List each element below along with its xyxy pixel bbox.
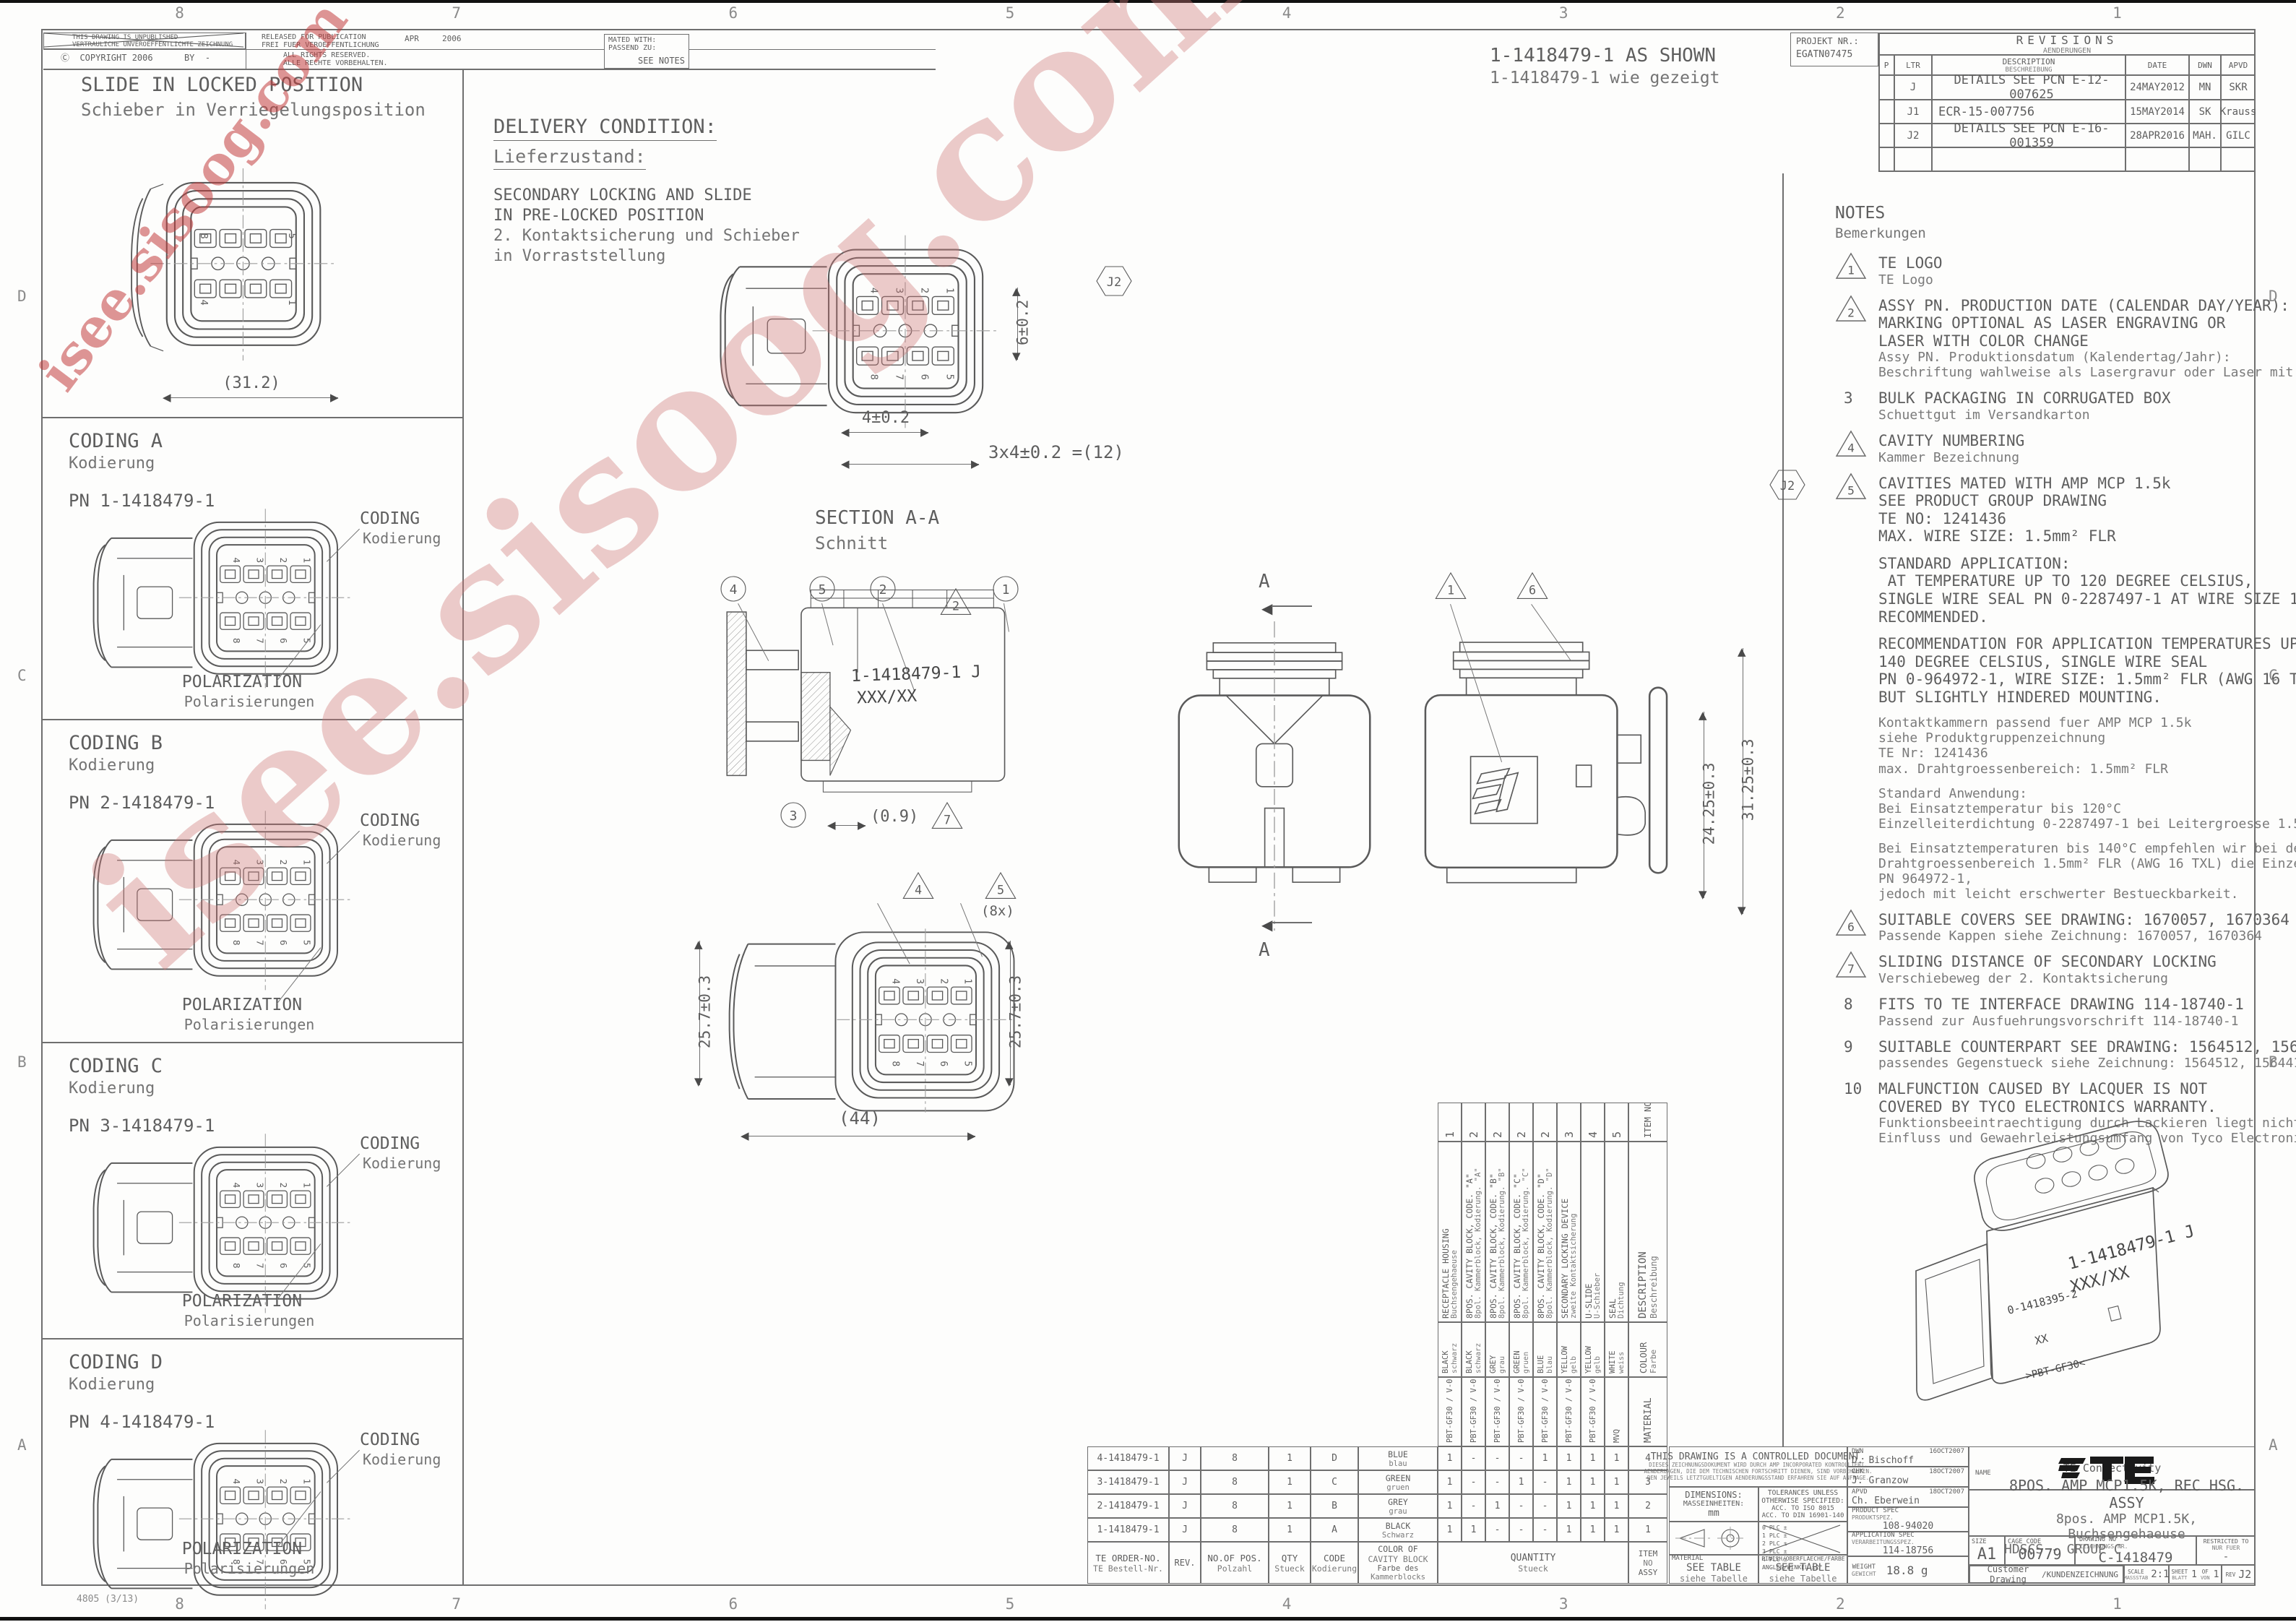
part-cell-value: 1 [1471, 1524, 1477, 1535]
note-line-de: Einzelleiterdichtung 0-2287497-1 bei Lei… [1878, 816, 2261, 832]
svg-text:4: 4 [730, 582, 738, 598]
dim-arrow-down: ▼ [1738, 904, 1746, 917]
dim-arrow-right: ▶ [858, 819, 866, 832]
slide-section-title: SLIDE IN LOCKED POSITION [81, 74, 363, 97]
revision-row-cell: MAH. [2189, 124, 2221, 147]
svg-text:6: 6 [1847, 920, 1855, 933]
coding-callout: CODING [360, 811, 420, 831]
vtable-item-colour-line: GREY [1490, 1355, 1498, 1373]
note-line-de: Bei Einsatztemperatur bis 120°C [1878, 801, 2261, 816]
part-row-cell: 1 [1438, 1494, 1462, 1518]
section-divider-1 [41, 417, 464, 418]
vtable-item-colour-line: BLACK [1466, 1350, 1475, 1373]
revisions-header: APVD [2221, 55, 2256, 75]
note-line-en: MARKING OPTIONAL AS LASER ENGRAVING OR [1878, 314, 2261, 332]
svg-text:2: 2 [277, 1479, 288, 1485]
part-cell-value: - [1542, 1501, 1548, 1511]
table-header-cell: QTYStueck [1269, 1542, 1311, 1584]
section-arrow-line-top [1272, 605, 1312, 607]
apvd-label: APVD [1852, 1488, 1868, 1496]
svg-text:4: 4 [915, 883, 922, 897]
copyright-line: Ⓒ COPYRIGHT 2006 BY - [61, 53, 210, 63]
balloon-2: 2 [868, 574, 897, 603]
table-header-line: ITEM [1639, 1549, 1658, 1558]
section-arrow-label-top: A [1259, 571, 1270, 593]
vtable-item-colour-text: WHITEweiss [1607, 1324, 1628, 1376]
part-row-cell: 1 [1581, 1446, 1605, 1470]
product-spec-label-de: PRODUKTSPEZ. [1852, 1514, 1894, 1521]
zone-label-right: C [2269, 667, 2278, 685]
cage-code-label: CAGE CODE [2006, 1538, 2041, 1545]
part-color-de: grau [1389, 1507, 1407, 1516]
svg-text:2: 2 [879, 582, 887, 598]
tol-line2: OTHERWISE SPECIFIED: [1761, 1497, 1844, 1505]
note-line-de: Beschriftung wahlweise als Lasergravur o… [1878, 365, 2261, 380]
part-row-cell: 1 [1438, 1518, 1462, 1542]
table-header-line: QTY [1282, 1553, 1298, 1563]
part-row-cell: 2-1418479-1 [1087, 1494, 1169, 1518]
note-line-de: Drahtgroessenbereich 1.5mm² FLR (AWG 16 … [1878, 856, 2261, 871]
svg-text:6: 6 [938, 1061, 949, 1066]
part-row-cell: GREENgruen [1358, 1470, 1438, 1494]
svg-text:8: 8 [868, 374, 880, 380]
part-row-cell: - [1509, 1518, 1533, 1542]
material-value: SEE TABLE [1686, 1562, 1741, 1574]
part-row-cell: - [1533, 1518, 1557, 1542]
cage-code-value: 00779 [2018, 1545, 2061, 1563]
note-line-en: TE LOGO [1878, 254, 2261, 272]
part-color-de: Schwarz [1382, 1531, 1414, 1540]
bottom-dim-left: 25.7±0.3 [696, 939, 715, 1084]
part-cell-value: 1 [1447, 1524, 1453, 1535]
vtable-item-material: PBT-GF30 / V-0 [1509, 1377, 1533, 1446]
released-month: APR [405, 35, 419, 44]
delivery-line1: SECONDARY LOCKING AND SLIDE [493, 186, 752, 205]
apvd-cell: APVD18OCT2007 Ch. Eberwein [1847, 1487, 1969, 1507]
svg-text:1: 1 [301, 860, 312, 866]
part-cell-value: 1 [1566, 1501, 1572, 1511]
vtable-item-no: 2 [1509, 1103, 1533, 1142]
vtable-item-no-line: 3 [1563, 1131, 1576, 1138]
balloon-1: 1 [991, 574, 1020, 603]
vtable-item-desc-line: U-Schieber [1594, 1273, 1602, 1319]
bottom-view: 48372615 [726, 928, 1017, 1106]
part-cell-value: 1 [1614, 1477, 1620, 1488]
zone-label-top: 3 [1549, 4, 1578, 22]
table-header-line: TE ORDER-NO. [1095, 1553, 1160, 1563]
dim-arrow-left: ◀ [841, 457, 850, 470]
section-arrow-label-bottom: A [1259, 939, 1270, 962]
vtable-item-material-text: PBT-GF30 / V-0 [1559, 1379, 1580, 1446]
side-dim-1: 24.25±0.3 [1701, 731, 1719, 876]
polarization-callout: POLARIZATION [155, 996, 329, 1015]
revision-row-cell: Krauss [2221, 100, 2256, 124]
table-header-line: NO [1643, 1558, 1652, 1568]
part-cell-value: 1 [1614, 1524, 1620, 1535]
application-spec-label: APPLICATION SPEC [1852, 1532, 1915, 1539]
svg-text:4: 4 [230, 558, 241, 564]
vtable-header-desc-line: DESCRIPTION [1638, 1251, 1649, 1319]
quantity-header-de: Stueck [1518, 1563, 1548, 1574]
of-label-de: VON [2201, 1575, 2210, 1581]
revision-value: J2 [1907, 130, 1920, 142]
coding-view-C: 48372615 [85, 1143, 374, 1311]
svg-text:3: 3 [914, 978, 925, 984]
part-row-cell: 1 [1533, 1446, 1557, 1470]
note-item: Kontaktkammern passend fuer AMP MCP 1.5k… [1835, 715, 2261, 776]
svg-text:7: 7 [1847, 962, 1855, 976]
vtable-header-material: MATERIAL [1628, 1377, 1667, 1446]
vtable-item-desc-line: 8pol. Kammerblock, Kodierung. "A" [1475, 1168, 1483, 1319]
apvd-date: 18OCT2007 [1929, 1488, 1964, 1496]
vtable-item-colour-line: gruen [1522, 1352, 1530, 1373]
coding-view-A: 48372615 [85, 518, 374, 686]
note-line-de: TE Nr: 1241436 [1878, 746, 2261, 761]
part-color-de: gruen [1386, 1483, 1410, 1492]
vtable-item-colour-text: BLUEblau [1535, 1324, 1556, 1376]
vtable-item-colour-text: GREENgruen [1511, 1324, 1532, 1376]
balloon-5: 5 [808, 574, 837, 603]
zone-label-top: 2 [1826, 4, 1855, 22]
note-line-en: 140 DEGREE CELSIUS, SINGLE WIRE SEAL [1878, 653, 2261, 671]
revision-value: MAH. [2193, 130, 2217, 142]
polarization-callout-de: Polarisierungen [163, 1561, 336, 1578]
size-label: SIZE [1969, 1538, 1986, 1545]
released-line2: FREI FUER VEROEFFENTLICHUNG [262, 41, 379, 50]
part-cell-value: 1 [1590, 1524, 1596, 1535]
dwn-cell: DWN16OCT2007 D. Bischoff [1847, 1446, 1969, 1467]
revisions-title-de: AENDERUNGEN [2043, 47, 2091, 55]
part-row-cell: - [1485, 1470, 1509, 1494]
table-header-line: REV. [1175, 1558, 1196, 1568]
part-row-cell: C [1311, 1470, 1358, 1494]
of-label: OF [2201, 1569, 2210, 1575]
zone-label-top: 7 [442, 4, 471, 22]
revisions-header-text: LTR [1906, 61, 1920, 70]
section-marking-2: XXX/XX [857, 687, 918, 709]
section-arrow-top: ◀ [1261, 600, 1272, 617]
dim-arrow-up: ▲ [1699, 709, 1707, 722]
part-row-cell: 1 [1485, 1494, 1509, 1518]
dim-line [843, 464, 979, 465]
svg-text:5: 5 [819, 582, 827, 598]
projection-symbol-icon [1674, 1525, 1753, 1551]
coding-callout-de: Kodierung [363, 1155, 441, 1173]
svg-text:7: 7 [894, 374, 905, 380]
svg-text:1-1418479-1 J: 1-1418479-1 J [2066, 1222, 2197, 1274]
vtable-item-desc: 8POS. CAVITY BLOCK, CODE. "D"8pol. Kamme… [1533, 1142, 1557, 1322]
vtable-item-colour: YELLOWgelb [1557, 1322, 1581, 1377]
svg-text:3: 3 [254, 558, 265, 564]
vtable-item-colour-text: YELLOWgelb [1559, 1324, 1580, 1376]
note-line-en: SUITABLE COUNTERPART SEE DRAWING: 156451… [1878, 1038, 2261, 1056]
left-column-divider [462, 69, 464, 1586]
vtable-item-material-line: PBT-GF30 / V-0 [1446, 1379, 1455, 1443]
part-cell-value: 1 [1566, 1477, 1572, 1488]
mated-see-notes: SEE NOTES [616, 56, 685, 66]
vtable-item-desc-line: 8pol. Kammerblock, Kodierung. "D" [1546, 1168, 1555, 1319]
vtable-item-colour-line: weiss [1618, 1352, 1626, 1373]
part-cell-value: 1 [1590, 1477, 1596, 1488]
part-color-en: GREEN [1386, 1473, 1411, 1483]
zone-label-left: B [17, 1053, 27, 1071]
part-row-cell: 1 [1557, 1518, 1581, 1542]
part-cell-value: - [1471, 1453, 1477, 1464]
svg-text:4: 4 [230, 1479, 241, 1485]
balloon-4: 4 [719, 574, 748, 603]
notes-column-divider [1782, 173, 1784, 1446]
table-header-cell: CODEKodierung [1311, 1542, 1358, 1584]
coding-section-pn: PN 3-1418479-1 [69, 1116, 215, 1136]
part-cell-value: 1 [1495, 1501, 1501, 1511]
revision-row-cell: J [1894, 75, 1932, 100]
note-line-en: BULK PACKAGING IN CORRUGATED BOX [1878, 389, 2261, 407]
svg-text:1: 1 [1002, 582, 1010, 598]
table-header-cell: REV. [1169, 1542, 1201, 1584]
svg-text:2: 2 [277, 860, 288, 866]
dim-arrow-up: ▲ [1738, 645, 1746, 658]
part-row-cell: - [1462, 1446, 1485, 1470]
revision-value: ECR-15-007756 [1938, 105, 2034, 119]
dimensions-cell: DIMENSIONS: MASSEINHEITEN: mm [1669, 1487, 1758, 1522]
part-row-cell: - [1462, 1494, 1485, 1518]
header-bottom-line [43, 69, 936, 70]
coding-callout: CODING [360, 1134, 420, 1154]
svg-text:J2: J2 [1780, 479, 1795, 493]
vtable-item-material: PBT-GF30 / V-0 [1462, 1377, 1485, 1446]
part-cell-value: 4 [1645, 1453, 1651, 1464]
part-cell-value: - [1471, 1477, 1477, 1488]
plc-cross [1761, 1524, 1844, 1554]
controlled-doc-en: THIS DRAWING IS A CONTROLLED DOCUMENT. [1651, 1451, 1865, 1462]
customer-drawing-cell: Customer Drawing /KUNDENZEICHNUNG [1969, 1565, 2124, 1584]
part-row-cell: 8 [1201, 1446, 1269, 1470]
note-line-en: STANDARD APPLICATION: [1878, 555, 2261, 573]
table-header-line: Kammerblocks [1371, 1573, 1425, 1582]
part-cell-value: D [1332, 1453, 1337, 1464]
product-spec-value: 108-94020 [1883, 1521, 1933, 1532]
svg-text:2: 2 [918, 288, 930, 293]
part-cell-value: 1 [1447, 1453, 1453, 1464]
note-line-en: AT TEMPERATURE UP TO 120 DEGREE CELSIUS, [1878, 572, 2261, 590]
note-item: 1TE LOGOTE Logo [1835, 254, 2261, 288]
revisions-header-text: DATE [2148, 61, 2167, 70]
svg-text:7: 7 [254, 1263, 265, 1269]
vtable-item-desc-line: Buchsengehaeuse [1451, 1250, 1459, 1319]
revision-value: DETAILS SEE PCN E-16-001359 [1938, 121, 2125, 150]
coding-section-subtitle: Kodierung [69, 1376, 155, 1394]
svg-text:2: 2 [277, 558, 288, 564]
part-cell-value: - [1495, 1453, 1501, 1464]
note-item: Standard Anwendung:Bei Einsatztemperatur… [1835, 786, 2261, 832]
vtable-item-no-text: 5 [1607, 1105, 1628, 1141]
restricted-label-de: NUR FUER [2212, 1545, 2240, 1551]
vtable-item-desc: 8POS. CAVITY BLOCK, CODE. "A"8pol. Kamme… [1462, 1142, 1485, 1322]
part-row-cell: 1 [1605, 1494, 1628, 1518]
delivery-title: DELIVERY CONDITION: [493, 116, 717, 139]
table-header-line: Polzahl [1217, 1563, 1252, 1574]
section-title: SECTION A-A [815, 507, 939, 530]
side-dim-2: 31.25±0.3 [1740, 707, 1758, 852]
vtable-item-material-line: PBT-GF30 / V-0 [1518, 1379, 1527, 1443]
revision-empty-cell [1878, 147, 1894, 172]
note-number-marker: 10 [1844, 1080, 1862, 1097]
note-line-en: CAVITY NUMBERING [1878, 432, 2261, 450]
vtable-item-no: 2 [1462, 1103, 1485, 1142]
part-row-cell: 4 [1628, 1446, 1667, 1470]
part-cell-value: - [1519, 1501, 1524, 1511]
projekt-number: EGATN07475 [1796, 49, 1852, 60]
dim-arrow-left: ◀ [741, 1129, 749, 1142]
delivery-line2: IN PRE-LOCKED POSITION [493, 207, 704, 225]
notes-subtitle: Bemerkungen [1835, 225, 1926, 241]
revision-value: 28APR2016 [2130, 130, 2185, 142]
bottom-dim-right: 25.7±0.3 [1007, 939, 1025, 1084]
vtable-item-material: PBT-GF30 / V-0 [1557, 1377, 1581, 1446]
material-cell: MATERIAL SEE TABLE siehe Tabelle [1669, 1555, 1758, 1584]
svg-text:0-1418395-2: 0-1418395-2 [2006, 1287, 2079, 1316]
revisions-header: DATE [2125, 55, 2189, 75]
finish-value-de: siehe Tabelle [1769, 1574, 1837, 1584]
note-line-de: TE Logo [1878, 272, 2261, 288]
vtable-header-colour-line: Farbe [1649, 1350, 1658, 1373]
zone-label-bottom: 4 [1272, 1595, 1301, 1613]
vtable-item-no: 2 [1533, 1103, 1557, 1142]
vtable-item-material-text: MVQ [1607, 1379, 1628, 1446]
part-row-cell: - [1462, 1470, 1485, 1494]
tol-line3: ACC. TO ISO 8015 [1771, 1505, 1834, 1512]
note-line-de: Passende Kappen siehe Zeichnung: 1670057… [1878, 928, 2261, 944]
coding-callout: CODING [360, 1431, 420, 1450]
note-item: 8FITS TO TE INTERFACE DRAWING 114-18740-… [1835, 996, 2261, 1029]
svg-text:1: 1 [301, 1183, 312, 1189]
controlled-doc-de3: DEN JEWEILS LETZTGUELTIGEN AENDERUNGSSTA… [1647, 1475, 1869, 1482]
vtable-item-material: MVQ [1605, 1377, 1628, 1446]
note-line-de: Schuettgut im Versandkarton [1878, 407, 2261, 423]
customer-drawing-label: Customer Drawing [1975, 1564, 2042, 1584]
revision-row-cell: MN [2189, 75, 2221, 100]
delivery-front-view: 48372615 [712, 242, 1022, 428]
part-row-cell: 1 [1269, 1494, 1311, 1518]
dim-line [743, 1136, 975, 1136]
svg-text:8: 8 [198, 233, 210, 238]
isometric-view: 1-1418479-1 JXXX/XX0-1418395-2XX>PBT-GF3… [1871, 1087, 2232, 1411]
svg-text:2: 2 [938, 978, 949, 984]
revisions-header-text: APVD [2229, 61, 2248, 70]
vtable-item-no: 1 [1438, 1103, 1462, 1142]
part-cell-value: - [1542, 1524, 1548, 1535]
svg-text:3: 3 [254, 860, 265, 866]
svg-text:6: 6 [1529, 583, 1536, 598]
vtable-item-colour-text: BLACKschwarz [1440, 1324, 1461, 1376]
vtable-item-no-line: 2 [1516, 1131, 1528, 1138]
note-line-en: ASSY PN. PRODUCTION DATE (CALENDAR DAY/Y… [1878, 297, 2261, 315]
vtable-item-no: 5 [1605, 1103, 1628, 1142]
as-shown-subtitle: 1-1418479-1 wie gezeigt [1490, 69, 1720, 88]
note-line-en: RECOMMENDATION FOR APPLICATION TEMPERATU… [1878, 635, 2261, 653]
part-cell-value: B [1332, 1501, 1337, 1511]
revision-empty-cell [2221, 147, 2256, 172]
vtable-item-no-line: 2 [1540, 1131, 1552, 1138]
part-row-cell: D [1311, 1446, 1358, 1470]
part-row-cell: A [1311, 1518, 1358, 1542]
note-triangle-marker: 2 [1835, 294, 1867, 326]
dimensions-unit: mm [1708, 1508, 1719, 1519]
revisions-header: DWN [2189, 55, 2221, 75]
section-divider-2 [41, 719, 464, 720]
slide-locked-view: 8541 [126, 170, 358, 361]
coding-section-pn: PN 2-1418479-1 [69, 793, 215, 813]
vtable-item-material-line: PBT-GF30 / V-0 [1589, 1379, 1598, 1443]
table-header-cell: TE ORDER-NO.TE Bestell-Nr. [1087, 1542, 1169, 1584]
vtable-item-desc-text: 8POS. CAVITY BLOCK, CODE. "C"8pol. Kamme… [1511, 1144, 1532, 1321]
vtable-item-colour-line: BLACK [1442, 1350, 1451, 1373]
part-row-cell: J [1169, 1470, 1201, 1494]
note-item: 3BULK PACKAGING IN CORRUGATED BOXSchuett… [1835, 389, 2261, 423]
vtable-item-no: 4 [1581, 1103, 1605, 1142]
vtable-item-material-text: PBT-GF30 / V-0 [1488, 1379, 1509, 1446]
part-cell-value: 2 [1645, 1501, 1651, 1511]
bottom-count-label: (8x) [981, 903, 1014, 919]
svg-text:5: 5 [1847, 483, 1855, 497]
sheet-cell: SHEET BLATT 1 OF VON 1 [2169, 1565, 2222, 1584]
zone-label-bottom: 2 [1826, 1595, 1855, 1613]
svg-text:2: 2 [952, 599, 959, 613]
engineering-drawing-sheet: THIS DRAWING IS UNPUBLISHED VERTRAULICHE… [0, 0, 2296, 1622]
part-row-cell: 3-1418479-1 [1087, 1470, 1169, 1494]
vtable-item-no-line: 2 [1492, 1131, 1504, 1138]
vtable-item-desc: SECONDARY LOCKING DEVICEzweite Kontaktsi… [1557, 1142, 1581, 1322]
svg-text:4: 4 [1847, 441, 1855, 454]
vtable-item-desc: SEALDichtung [1605, 1142, 1628, 1322]
revision-row-cell: DETAILS SEE PCN E-12-007625 [1932, 75, 2125, 100]
revision-value: GILC [2226, 130, 2250, 142]
bottom-width-label: (44) [795, 1108, 925, 1129]
part-row-cell: J [1169, 1446, 1201, 1470]
coding-view-D: 48372615 [85, 1439, 374, 1607]
customer-drawing-label-de: /KUNDENZEICHNUNG [2042, 1570, 2118, 1579]
zone-label-top: 6 [719, 4, 748, 22]
coding-section-pn: PN 1-1418479-1 [69, 491, 215, 511]
rev-value: J2 [2238, 1568, 2251, 1581]
part-row-cell: 1 [1269, 1518, 1311, 1542]
coding-section-subtitle: Kodierung [69, 1079, 155, 1098]
vtable-item-desc-line: 8pol. Kammerblock, Kodierung. "B" [1498, 1168, 1507, 1319]
svg-text:6: 6 [918, 374, 930, 380]
vtable-item-material-text: PBT-GF30 / V-0 [1440, 1379, 1461, 1446]
dim-line [165, 397, 338, 398]
vtable-header-colour-line: COLOUR [1639, 1342, 1649, 1373]
vtable-item-material: PBT-GF30 / V-0 [1438, 1377, 1462, 1446]
part-cell-value: 8 [1232, 1501, 1238, 1511]
part-cell-value: 1-1418479-1 [1097, 1524, 1159, 1535]
note-line-de: Passend zur Ausfuehrungsvorschrift 114-1… [1878, 1014, 2261, 1029]
as-shown-title: 1-1418479-1 AS SHOWN [1490, 45, 1716, 67]
vtable-item-colour: BLACKschwarz [1462, 1322, 1485, 1377]
part-row-cell: 1 [1438, 1470, 1462, 1494]
vtable-item-material-text: PBT-GF30 / V-0 [1535, 1379, 1556, 1446]
product-spec-label: PRODUCT SPEC [1852, 1507, 1899, 1514]
front-pitch-dim: 4±0.2 [843, 409, 928, 428]
vtable-item-colour-line: YELLOW [1561, 1346, 1570, 1373]
part-cell-value: 1 [1614, 1501, 1620, 1511]
part-row-cell: - [1533, 1494, 1557, 1518]
revisions-header-text: DESCRIPTION [2003, 57, 2055, 66]
triangle-flag-6: 6 [1516, 571, 1549, 600]
svg-text:8: 8 [230, 638, 241, 644]
revision-row-cell: 24MAY2012 [2125, 75, 2189, 100]
note-line-de: Kontaktkammern passend fuer AMP MCP 1.5k [1878, 715, 2261, 730]
